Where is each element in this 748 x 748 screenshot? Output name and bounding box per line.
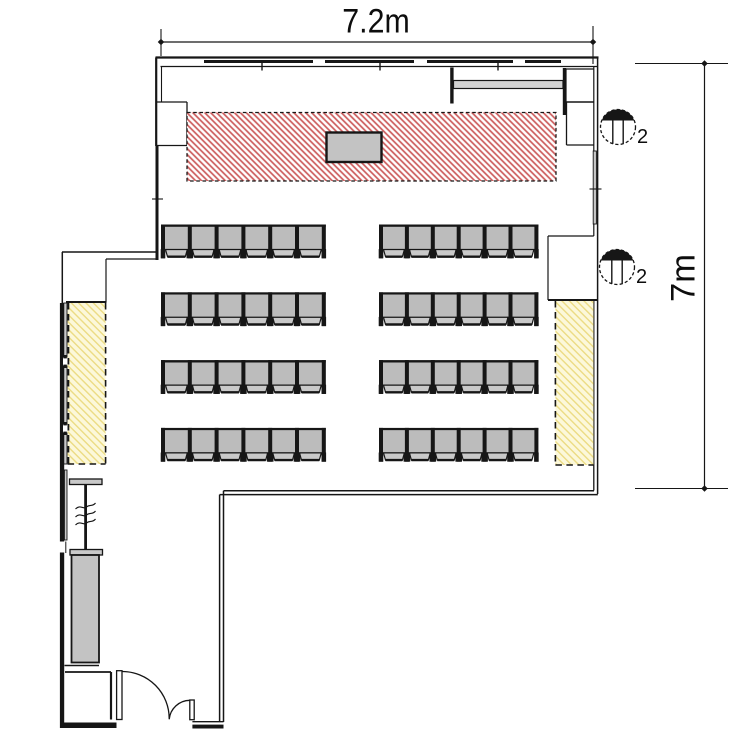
svg-text:2: 2 <box>636 266 647 288</box>
svg-text:2: 2 <box>637 126 648 148</box>
svg-text:7m: 7m <box>665 254 703 302</box>
svg-text:7.2m: 7.2m <box>342 2 409 40</box>
